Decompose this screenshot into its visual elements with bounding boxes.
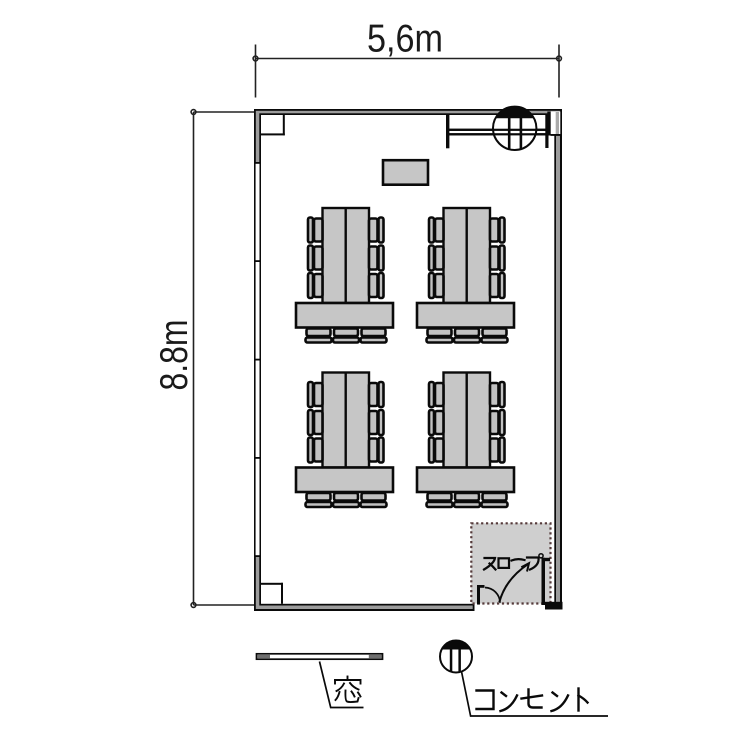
svg-text:8.8m: 8.8m	[153, 320, 196, 391]
svg-text:5,6m: 5,6m	[367, 18, 443, 61]
